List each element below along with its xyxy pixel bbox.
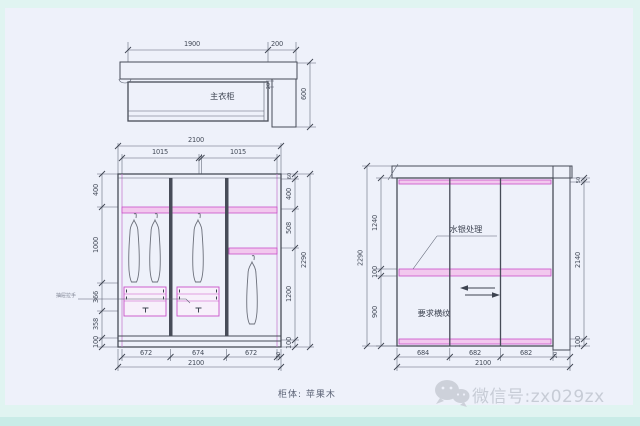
sheet-margin-bottom	[0, 417, 640, 426]
vertical-divider-left	[169, 178, 173, 336]
dim-front-right-400: 400	[285, 188, 293, 200]
dim-top-1900: 1900	[184, 40, 200, 48]
drawer-stack-left	[124, 287, 166, 316]
dim-front-1015-right: 1015	[230, 148, 246, 156]
dim-door-overall-2290: 2290	[357, 250, 365, 266]
dim-door-left-1240: 1240	[371, 215, 379, 231]
dim-front-bottom-672b: 672	[245, 349, 257, 357]
material-note: 柜体: 苹果木	[278, 388, 336, 400]
vertical-divider-right	[225, 178, 229, 336]
cad-drawing: 1900 200 600 20 主衣柜	[0, 0, 640, 426]
drawing-sheet: 1900 200 600 20 主衣柜	[0, 0, 640, 426]
wardrobe-plan-body	[128, 82, 268, 121]
panel-note: 水银处理	[450, 224, 483, 234]
wechat-id-label: 微信号:zx029zx	[472, 387, 605, 407]
right-column-shelf-band	[229, 248, 277, 254]
dim-door-right-50: 50	[576, 177, 582, 183]
top-view-label: 主衣柜	[210, 91, 235, 101]
dim-door-left-900: 900	[371, 306, 379, 318]
dim-front-bottom-674: 674	[192, 349, 204, 357]
sliding-door-panel-area	[397, 178, 553, 346]
dim-front-overall-2290: 2290	[300, 252, 308, 268]
dim-door-right-100: 100	[574, 336, 582, 348]
dim-door-total-2100: 2100	[475, 359, 491, 367]
dim-top-20: 20	[266, 83, 272, 89]
dim-front-left-400: 400	[92, 184, 100, 196]
dim-door-right-2140: 2140	[574, 252, 582, 268]
dim-door-bottom-20: 20	[553, 352, 559, 358]
drawer-stack-middle	[177, 287, 219, 316]
dim-front-1015-left: 1015	[152, 148, 168, 156]
dim-front-2100-top: 2100	[188, 136, 204, 144]
dim-front-right-1200: 1200	[285, 286, 293, 302]
dim-door-bottom-682a: 682	[469, 349, 481, 357]
door-waist-band	[399, 269, 551, 276]
dim-door-bottom-684: 684	[417, 349, 429, 357]
dim-door-left-100: 100	[371, 266, 379, 278]
dim-top-600: 600	[300, 88, 308, 100]
wardrobe-carcass	[118, 174, 281, 347]
dim-front-left-100: 100	[92, 336, 100, 348]
dim-front-right-100: 100	[285, 337, 293, 349]
drawer-note: 抽屉拉手	[56, 292, 76, 299]
dim-front-bottom-20: 20	[276, 352, 282, 358]
dim-front-right-60: 60	[287, 173, 293, 179]
dim-front-left-1000: 1000	[92, 237, 100, 253]
dim-front-left-366: 366	[92, 291, 100, 303]
dim-front-bottom-672a: 672	[140, 349, 152, 357]
grain-note: 要求横纹	[418, 308, 451, 318]
door-bottom-band	[399, 339, 551, 344]
top-shelf-band	[122, 207, 277, 213]
dim-door-bottom-682b: 682	[520, 349, 532, 357]
door-top-band	[399, 180, 551, 184]
dim-front-left-358: 358	[92, 318, 100, 330]
dim-front-total-2100: 2100	[188, 359, 204, 367]
dim-front-right-508: 508	[285, 222, 293, 234]
dim-top-200: 200	[271, 40, 283, 48]
